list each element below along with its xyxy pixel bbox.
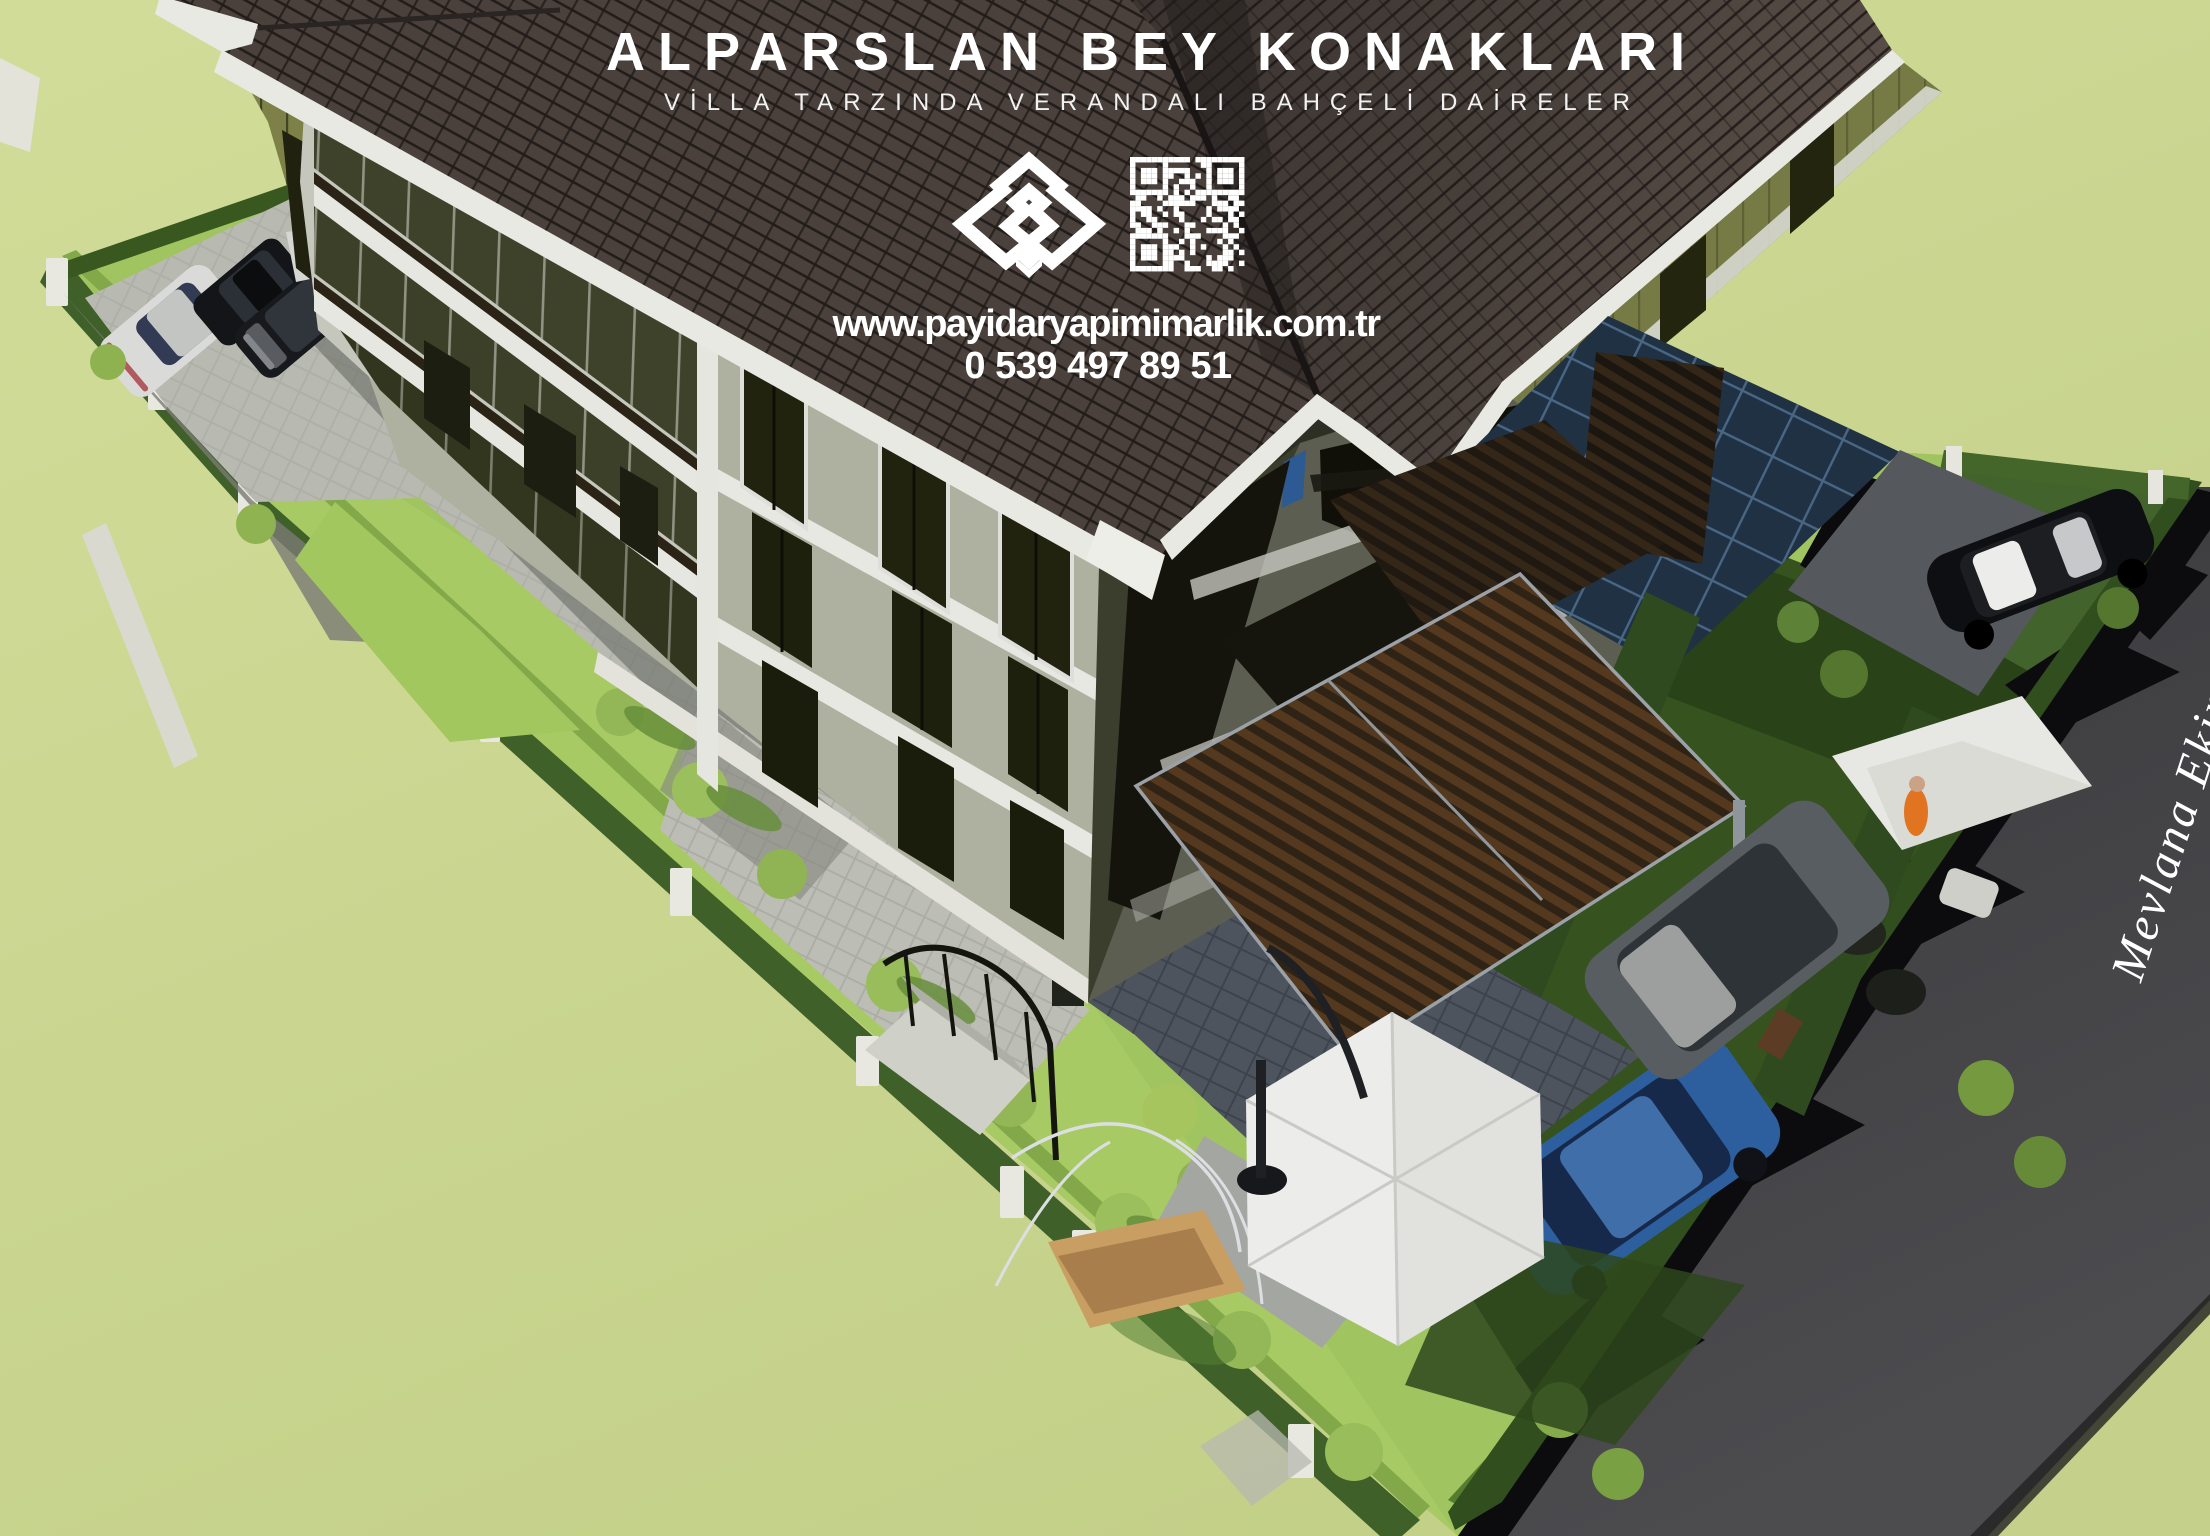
svg-text:www.payidaryapimimarlik.com.tr: www.payidaryapimimarlik.com.tr [831,303,1381,345]
svg-text:0 539 497 89 51: 0 539 497 89 51 [964,345,1232,387]
svg-text:VİLLA TARZINDA VERANDALI BAHÇE: VİLLA TARZINDA VERANDALI BAHÇELİ DAİRELE… [664,89,1640,116]
svg-text:ALPARSLAN BEY KONAKLARI: ALPARSLAN BEY KONAKLARI [606,22,1698,82]
